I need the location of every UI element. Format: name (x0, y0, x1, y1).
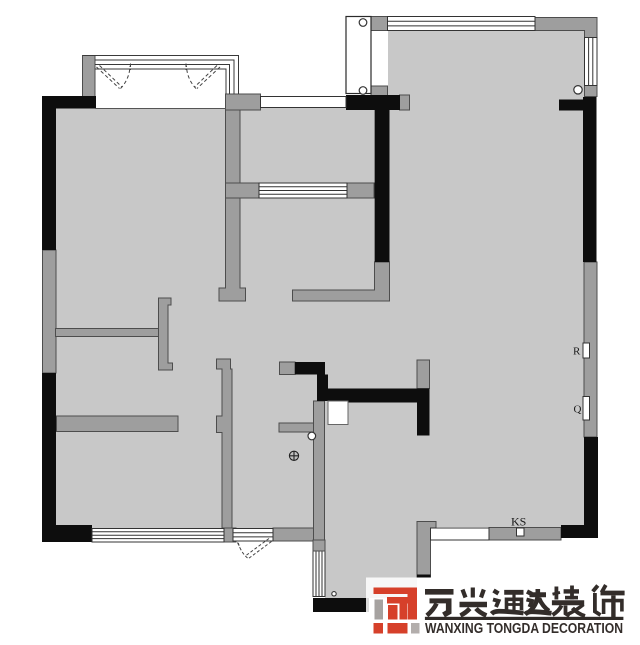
svg-text:R: R (573, 346, 581, 358)
svg-text:WANXING TONGDA DECORATION: WANXING TONGDA DECORATION (425, 620, 623, 637)
svg-text:Q: Q (574, 404, 582, 416)
svg-text:KS: KS (511, 515, 526, 529)
